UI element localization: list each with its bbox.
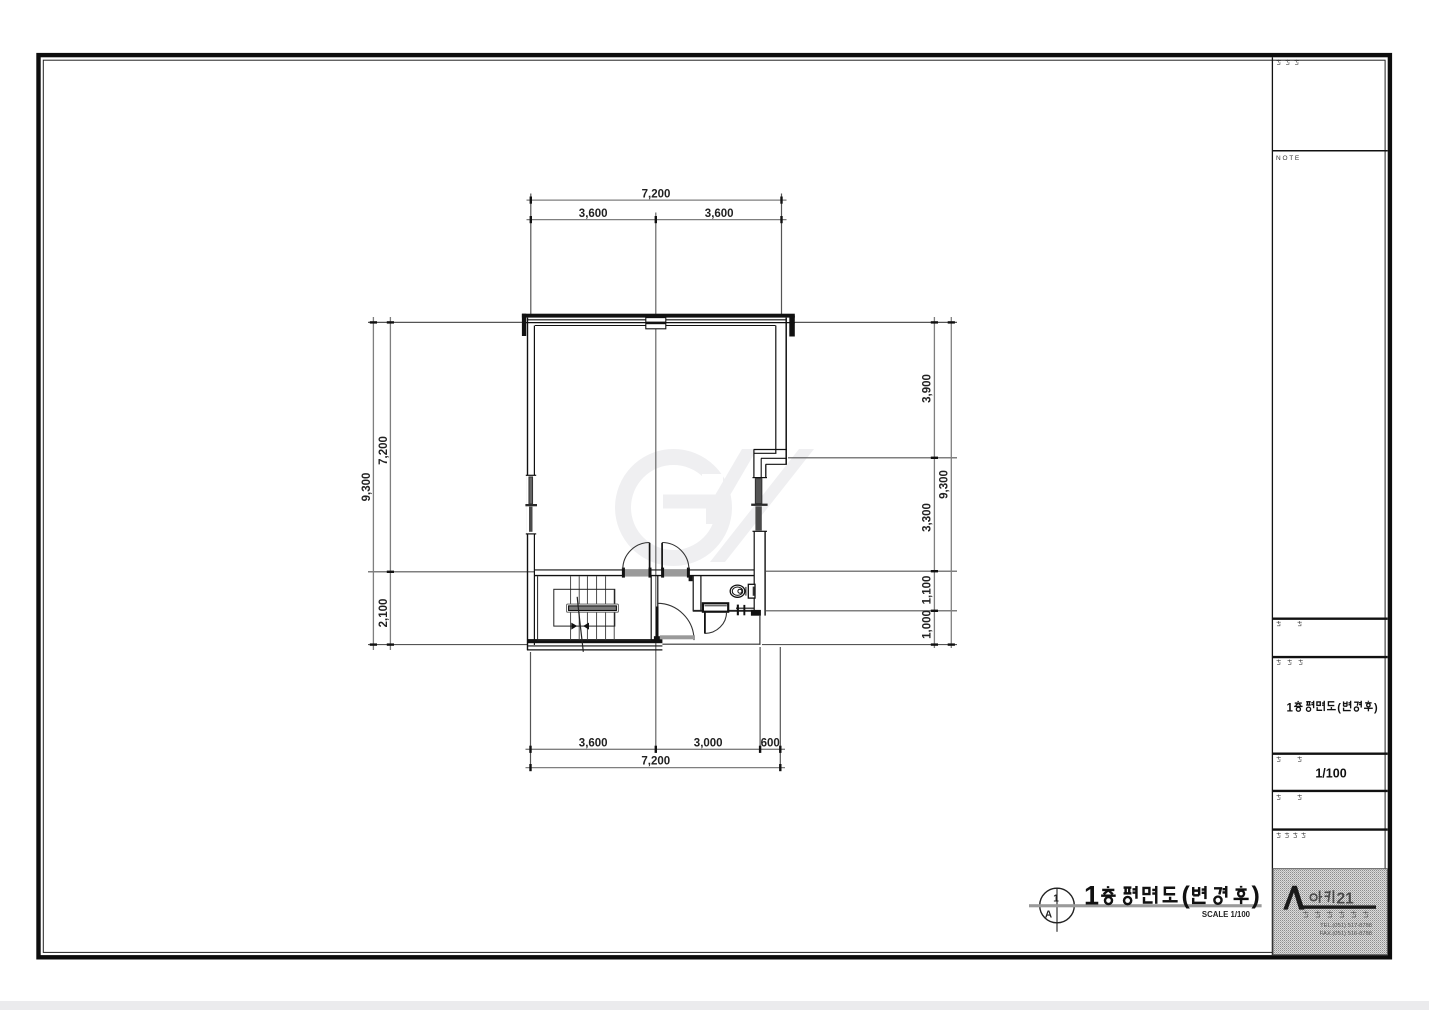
svg-text:1: 1	[1053, 894, 1059, 905]
svg-text:1,100: 1,100	[922, 576, 934, 605]
svg-text:FAX.(051) 516-8788: FAX.(051) 516-8788	[1320, 931, 1372, 937]
svg-text:1/100: 1/100	[1315, 767, 1346, 781]
svg-text:3,000: 3,000	[694, 737, 723, 749]
svg-text:N O T E: N O T E	[1276, 155, 1300, 162]
svg-text:7,200: 7,200	[641, 756, 670, 768]
svg-text:600: 600	[761, 737, 780, 749]
svg-text:(: (	[1182, 882, 1191, 910]
svg-text:1,000: 1,000	[922, 610, 934, 639]
svg-text:3,600: 3,600	[579, 737, 608, 749]
svg-text:): )	[1374, 702, 1378, 714]
svg-text:SCALE 1/100: SCALE 1/100	[1202, 910, 1251, 919]
svg-text:A: A	[1045, 910, 1052, 921]
svg-text:2,100: 2,100	[378, 599, 390, 628]
svg-text:(: (	[1337, 702, 1341, 714]
svg-text:21: 21	[1337, 891, 1355, 908]
svg-text:): )	[1252, 882, 1260, 910]
svg-text:7,200: 7,200	[642, 188, 671, 200]
svg-text:9,300: 9,300	[939, 470, 951, 499]
svg-text:3,600: 3,600	[705, 208, 734, 220]
svg-text:3,600: 3,600	[579, 208, 608, 220]
svg-text:7,200: 7,200	[378, 436, 390, 465]
svg-text:1: 1	[1287, 703, 1294, 715]
svg-text:TEL.(051) 517-8788: TEL.(051) 517-8788	[1320, 923, 1372, 929]
svg-text:9,300: 9,300	[361, 473, 373, 502]
svg-text:3,900: 3,900	[922, 374, 934, 403]
svg-text:1: 1	[1084, 881, 1099, 911]
svg-text:3,300: 3,300	[922, 503, 934, 532]
